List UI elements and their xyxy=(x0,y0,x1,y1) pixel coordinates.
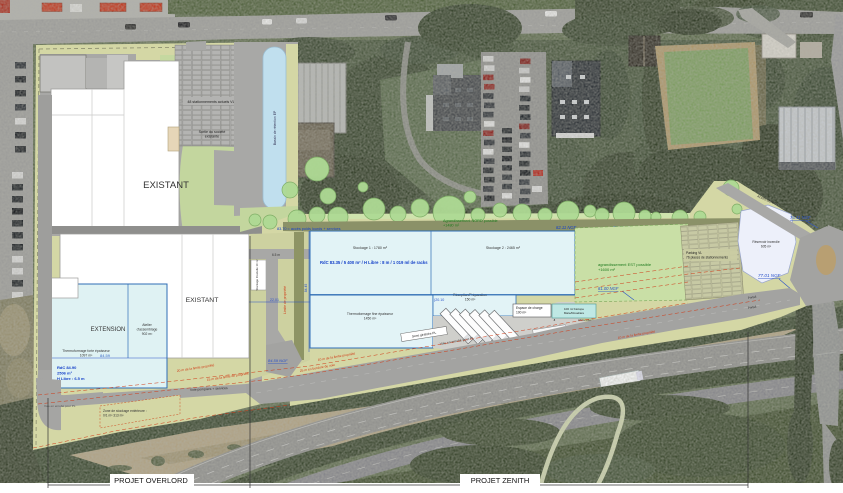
svg-text:77.01 NGF: 77.01 NGF xyxy=(758,273,782,278)
svg-text:1450 m²: 1450 m² xyxy=(364,317,377,321)
svg-text:Parking VL: Parking VL xyxy=(686,251,702,255)
svg-text:82.11 NGF: 82.11 NGF xyxy=(556,225,577,230)
svg-text:22.01: 22.01 xyxy=(270,298,279,302)
svg-text:Zone de stockage extérieure :: Zone de stockage extérieure : xyxy=(103,409,147,413)
svg-text:76 places de stationnements: 76 places de stationnements xyxy=(686,256,728,260)
svg-text:+1600 m²: +1600 m² xyxy=(598,267,616,272)
svg-text:EXISTANT: EXISTANT xyxy=(143,180,189,191)
svg-text:Stockage Poubelle 10 m²: Stockage Poubelle 10 m² xyxy=(255,259,259,290)
svg-text:H Libre : 6.5 m: H Libre : 6.5 m xyxy=(57,376,85,381)
svg-text:84.45: 84.45 xyxy=(304,284,308,293)
svg-text:2506 m²: 2506 m² xyxy=(57,371,73,376)
svg-text:Réception/Préparation: Réception/Préparation xyxy=(453,293,487,297)
svg-text:▲: ▲ xyxy=(553,318,556,322)
svg-text:(20.10: (20.10 xyxy=(434,298,444,302)
svg-text:Stockage 2 : 2465 m²: Stockage 2 : 2465 m² xyxy=(486,246,521,250)
svg-text:81.00 NGF: 81.00 NGF xyxy=(598,286,619,291)
svg-text:Voie en enrobé pour PL: Voie en enrobé pour PL xyxy=(44,404,76,408)
svg-text:84.59 NGF: 84.59 NGF xyxy=(268,358,288,363)
svg-text:48 stationnements actuels VL: 48 stationnements actuels VL xyxy=(187,100,234,104)
svg-text:RdC 83.35 / 5 400 m² / H Libre: RdC 83.35 / 5 400 m² / H Libre : 8 m / 1… xyxy=(320,260,428,265)
svg-text:RdC 84.90: RdC 84.90 xyxy=(57,365,77,370)
svg-text:Bassin de rétention EP: Bassin de rétention EP xyxy=(273,110,277,145)
svg-text:PROJET ZENITH: PROJET ZENITH xyxy=(471,476,530,485)
svg-text:Stockage 1 : 1780 m²: Stockage 1 : 1780 m² xyxy=(353,246,388,250)
svg-text:Atelier: Atelier xyxy=(142,323,152,327)
svg-text:605 m²: 605 m² xyxy=(761,245,772,249)
svg-text:Réservoir incendie: Réservoir incendie xyxy=(752,240,779,244)
svg-text:Thermoformage fine épaisseur: Thermoformage fine épaisseur xyxy=(347,312,394,316)
svg-text:Sortie du société: Sortie du société xyxy=(199,130,226,134)
svg-text:existante: existante xyxy=(205,135,219,139)
svg-text:1097 m²: 1097 m² xyxy=(80,354,93,358)
svg-text:84.59: 84.59 xyxy=(100,353,111,358)
svg-text:76.41 NGF: 76.41 NGF xyxy=(790,215,811,220)
svg-text:Agrandissement NORD possible: Agrandissement NORD possible xyxy=(443,219,498,223)
svg-text:0/1 m² 313 m²: 0/1 m² 313 m² xyxy=(103,414,124,418)
svg-text:100 m²: 100 m² xyxy=(516,311,527,315)
svg-text:EXTENSION: EXTENSION xyxy=(91,327,126,333)
svg-text:150 m²: 150 m² xyxy=(465,298,476,302)
svg-text:Limite de propriété: Limite de propriété xyxy=(283,286,287,314)
svg-text:+1480 m²: +1480 m² xyxy=(443,224,460,228)
svg-text:d'assemblage: d'assemblage xyxy=(137,328,158,332)
svg-text:83.70 = accès poids lourds + s: 83.70 = accès poids lourds + services xyxy=(277,227,341,231)
svg-text:Mare/Roselière: Mare/Roselière xyxy=(564,311,585,315)
svg-text:902 m²: 902 m² xyxy=(142,332,153,336)
svg-text:EXISTANT: EXISTANT xyxy=(186,297,219,304)
svg-text:PROJET OVERLORD: PROJET OVERLORD xyxy=(114,476,188,485)
svg-text:Espace de charge: Espace de charge xyxy=(516,306,543,310)
svg-text:6.5 m: 6.5 m xyxy=(272,253,280,257)
